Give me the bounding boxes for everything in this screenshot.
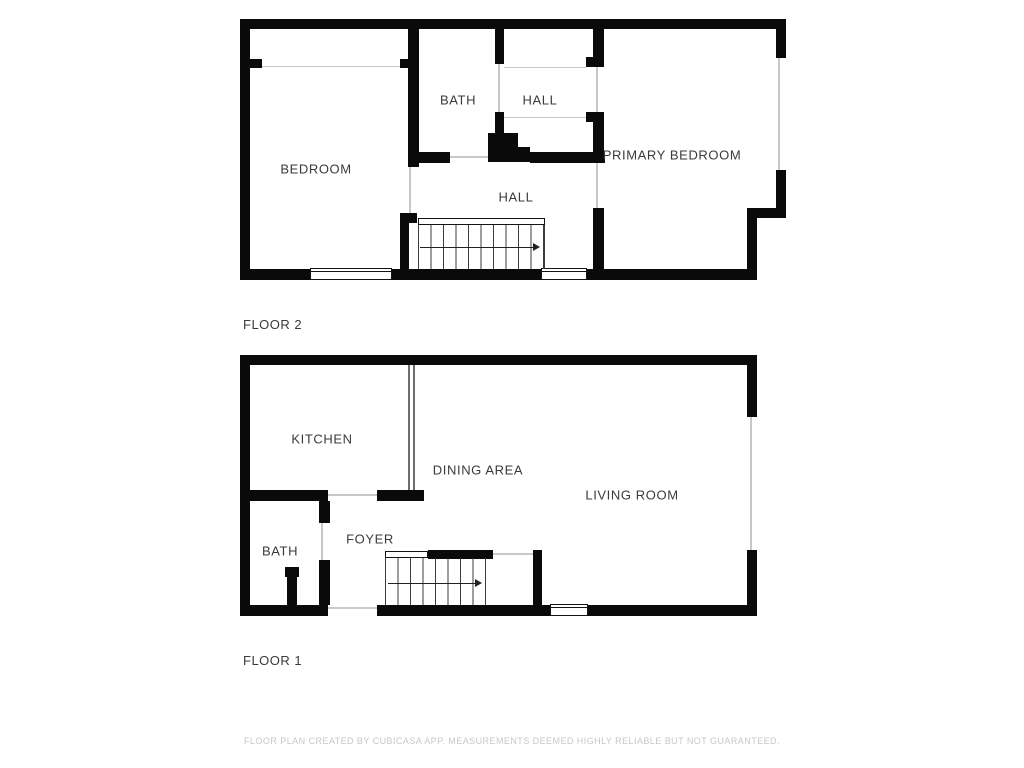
wall-stub <box>400 59 419 68</box>
room-label-kitchen: KITCHEN <box>291 432 352 447</box>
entry-door-line <box>328 607 377 609</box>
wall-stub <box>586 112 593 122</box>
window <box>550 604 588 616</box>
door-opening-line <box>409 167 411 213</box>
kitchen-divider-line <box>408 365 410 490</box>
window <box>310 268 392 280</box>
stairwell-header-fill <box>488 133 518 147</box>
window <box>541 268 587 280</box>
door-opening-line <box>450 156 488 158</box>
room-label-primary-bedroom: PRIMARY BEDROOM <box>603 148 742 163</box>
floor-plan-page: BEDROOM BATH HALL PRIMARY BEDROOM HALL F… <box>0 0 1024 768</box>
kitchen-divider-line <box>413 365 415 490</box>
wall-stub <box>249 59 262 68</box>
wall-segment <box>377 490 424 501</box>
wall-segment <box>240 355 757 365</box>
wall-segment <box>747 355 757 417</box>
door-opening-line <box>498 64 500 112</box>
wall-segment <box>747 208 786 218</box>
stairs-direction-arrow <box>388 583 475 584</box>
wall-stub <box>586 57 593 67</box>
window-line <box>778 58 780 170</box>
door-opening-line <box>596 67 598 112</box>
wall-segment <box>400 213 409 269</box>
wall-segment <box>408 152 450 163</box>
room-label-foyer: FOYER <box>346 532 394 547</box>
room-label-dining-area: DINING AREA <box>433 463 523 478</box>
wall-segment <box>593 29 604 67</box>
wall-segment <box>319 501 330 523</box>
ceiling-break-line <box>504 67 586 68</box>
ceiling-break-line <box>504 117 586 118</box>
stair-rail <box>418 218 545 225</box>
window-line <box>750 417 752 550</box>
wall-segment <box>240 355 250 616</box>
stairs-direction-arrow <box>420 247 533 248</box>
disclaimer-text: FLOOR PLAN CREATED BY CUBICASA APP. MEAS… <box>0 736 1024 746</box>
wall-segment <box>377 605 550 616</box>
wall-segment <box>593 208 604 269</box>
door-opening-line <box>596 163 598 208</box>
wall-segment <box>533 550 542 605</box>
room-label-hall-upper: HALL <box>523 93 558 108</box>
ceiling-break-line <box>262 66 400 67</box>
floor2-title: FLOOR 2 <box>243 317 302 332</box>
room-label-bath: BATH <box>262 544 298 559</box>
stair-rail <box>385 551 428 558</box>
wall-segment <box>319 560 330 605</box>
stairwell-header-fill <box>488 147 530 162</box>
wall-segment <box>747 218 757 269</box>
room-label-living-room: LIVING ROOM <box>585 488 678 503</box>
wall-segment <box>747 550 757 616</box>
door-opening-line <box>493 553 533 555</box>
door-opening-line <box>328 494 377 496</box>
wall-segment <box>408 29 419 167</box>
room-label-bedroom: BEDROOM <box>280 162 351 177</box>
wall-segment <box>240 605 328 616</box>
door-opening-line <box>321 523 323 560</box>
wall-segment <box>240 490 328 501</box>
wall-stub <box>285 567 299 577</box>
wall-segment <box>776 19 786 58</box>
wall-segment <box>287 577 297 605</box>
wall-segment <box>588 605 757 616</box>
wall-segment <box>240 19 786 29</box>
room-label-bath: BATH <box>440 93 476 108</box>
stairs-treads <box>385 558 486 605</box>
wall-segment <box>495 29 504 64</box>
floor1-title: FLOOR 1 <box>243 653 302 668</box>
room-label-hall-lower: HALL <box>499 190 534 205</box>
